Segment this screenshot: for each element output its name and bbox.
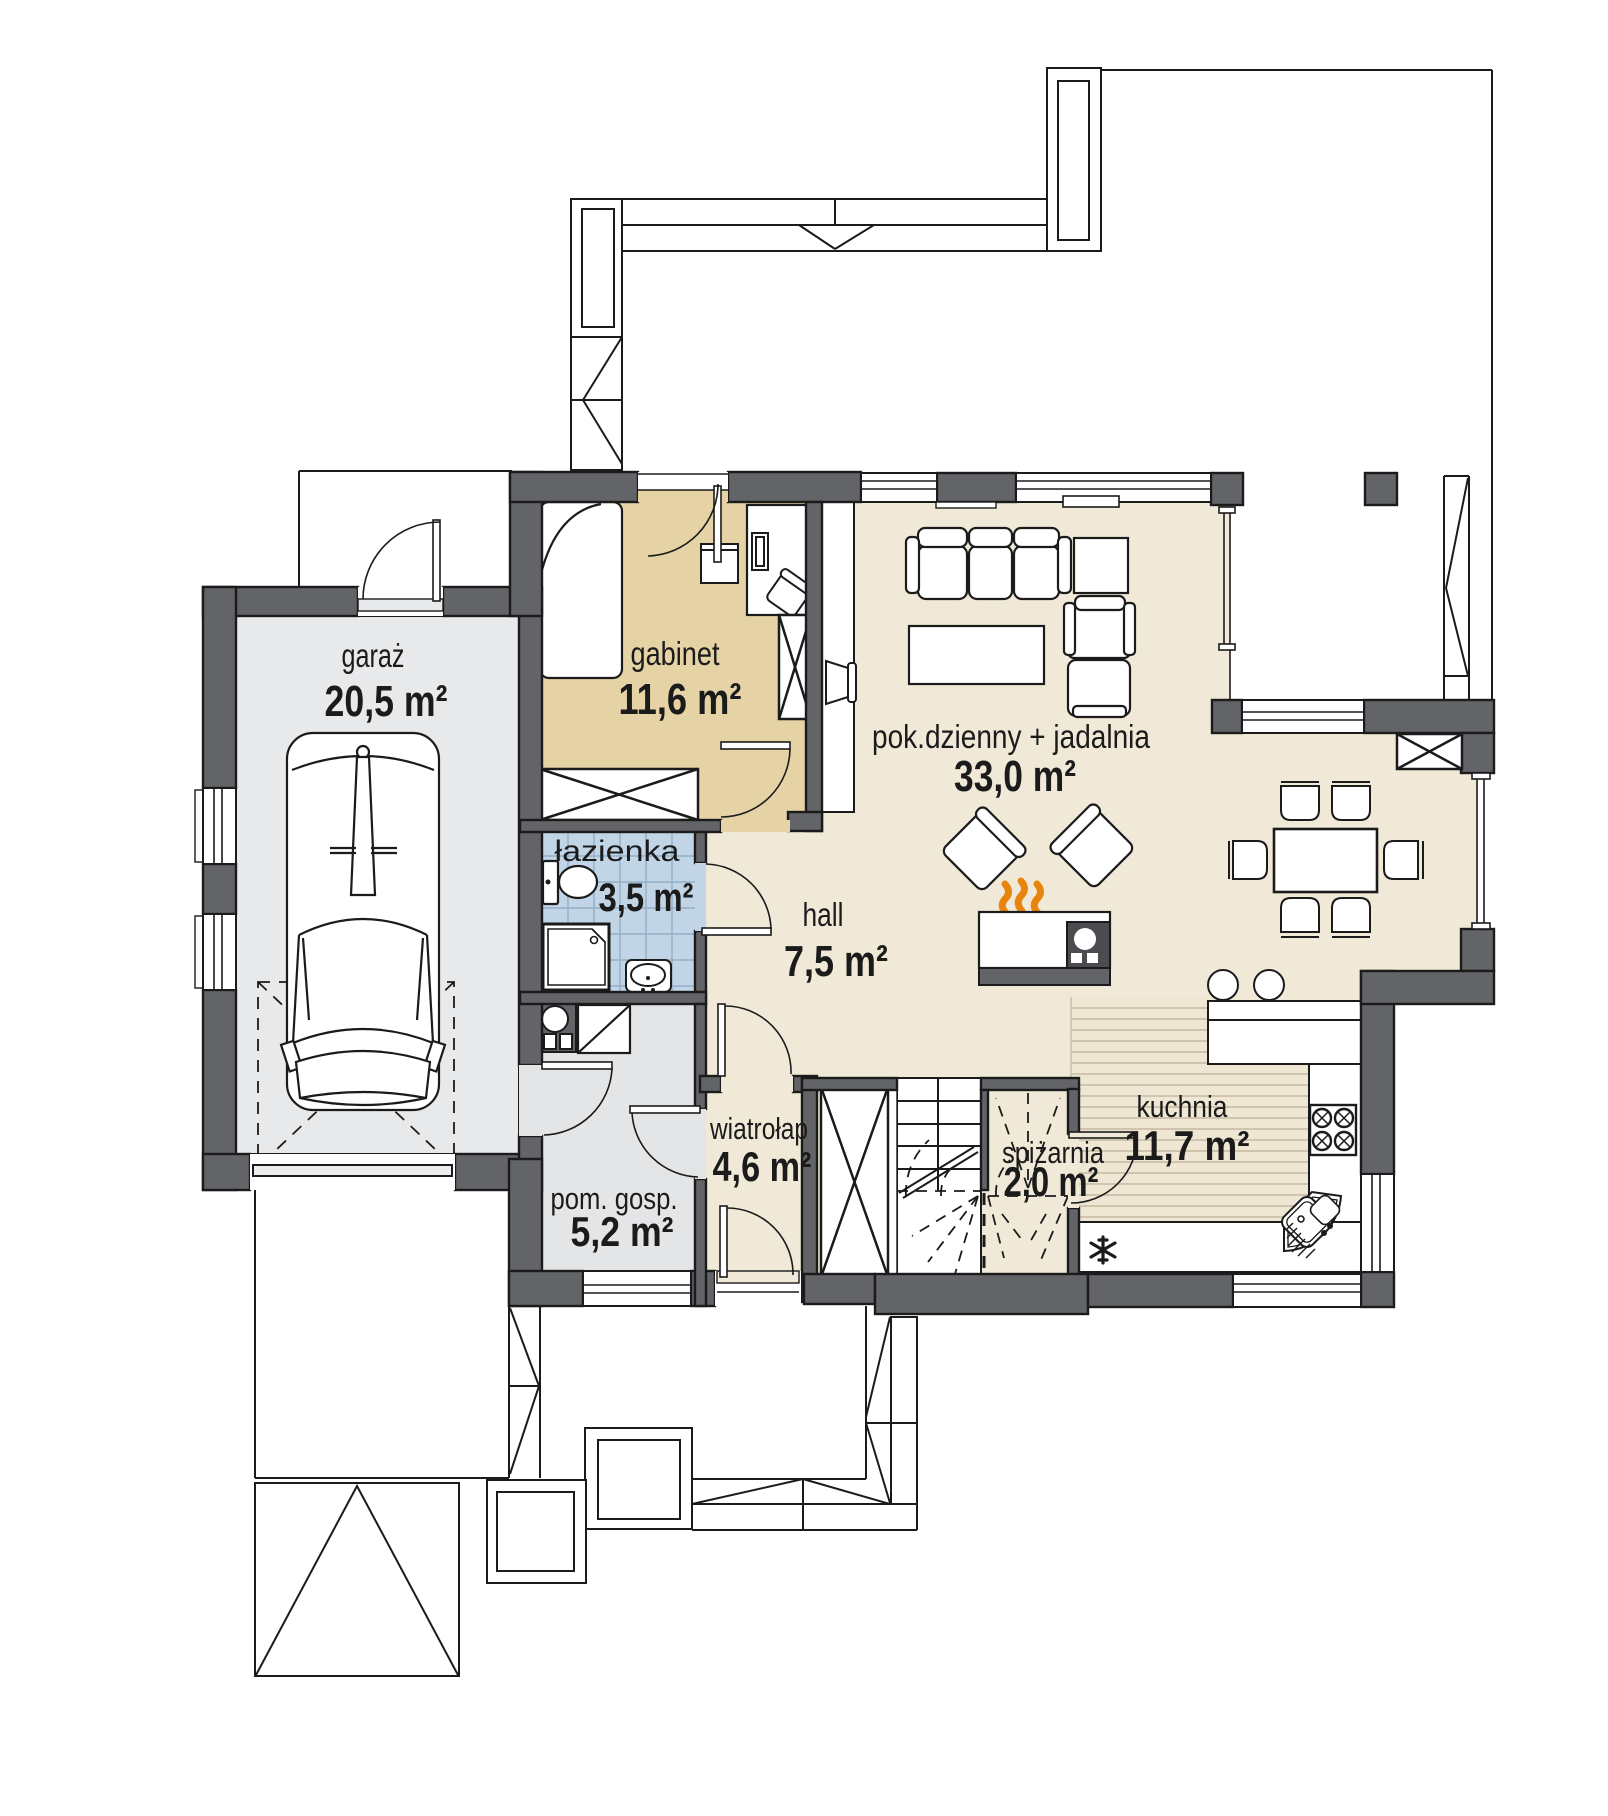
svg-text:2,0 m²: 2,0 m² [1004, 1158, 1099, 1205]
svg-text:7,5 m²: 7,5 m² [784, 937, 888, 986]
svg-text:4,6 m²: 4,6 m² [713, 1143, 812, 1190]
svg-text:11,6 m²: 11,6 m² [619, 675, 742, 724]
svg-text:33,0 m²: 33,0 m² [954, 752, 1076, 801]
svg-text:20,5 m²: 20,5 m² [325, 677, 448, 726]
svg-text:5,2 m²: 5,2 m² [571, 1208, 674, 1255]
svg-text:11,7 m²: 11,7 m² [1125, 1122, 1250, 1169]
svg-text:kuchnia: kuchnia [1137, 1089, 1229, 1124]
svg-text:garaż: garaż [342, 637, 405, 674]
svg-text:wiatrołap: wiatrołap [709, 1111, 808, 1146]
svg-text:pok.dzienny + jadalnia: pok.dzienny + jadalnia [872, 718, 1151, 755]
svg-text:hall: hall [803, 896, 844, 933]
svg-text:gabinet: gabinet [631, 635, 720, 672]
svg-text:3,5 m²: 3,5 m² [599, 876, 694, 920]
svg-text:łazienka: łazienka [555, 835, 680, 868]
